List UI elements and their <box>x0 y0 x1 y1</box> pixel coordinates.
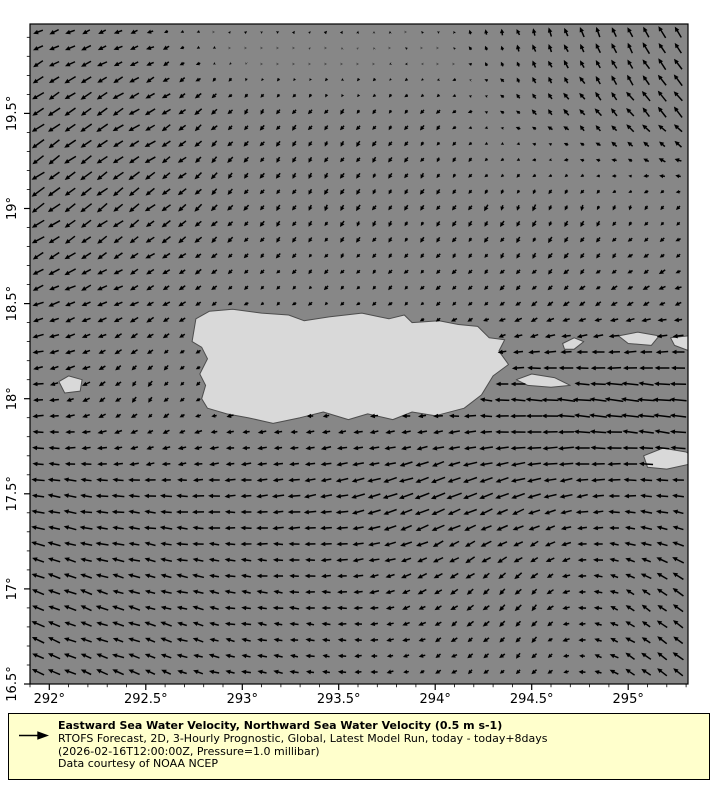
land-puerto-rico <box>192 309 508 423</box>
y-tick-label: 16.5° <box>5 666 20 701</box>
legend-subtitle: RTOFS Forecast, 2D, 3-Hourly Prognostic,… <box>58 733 548 746</box>
y-tick-label: 18.5° <box>5 286 20 321</box>
legend-title: Eastward Sea Water Velocity, Northward S… <box>58 720 548 733</box>
y-tick-label: 19° <box>5 197 20 220</box>
velocity-forecast-map-page: 292°292.5°293°293.5°294°294.5°295°16.5°1… <box>0 0 720 800</box>
reference-arrow-icon <box>18 729 50 741</box>
reference-arrow-wrap <box>9 714 58 745</box>
y-tick-label: 17° <box>5 577 20 600</box>
y-tick-label: 18° <box>5 387 20 410</box>
x-tick-label: 295° <box>613 692 644 707</box>
x-tick-label: 292.5° <box>124 692 168 707</box>
legend-box: Eastward Sea Water Velocity, Northward S… <box>8 713 710 780</box>
x-tick-label: 292° <box>34 692 65 707</box>
x-tick-label: 293.5° <box>317 692 361 707</box>
legend-credit: Data courtesy of NOAA NCEP <box>58 758 548 771</box>
x-tick-label: 293° <box>227 692 258 707</box>
y-tick-label: 19.5° <box>5 96 20 131</box>
x-tick-label: 294° <box>420 692 451 707</box>
velocity-quiver-plot: 292°292.5°293°293.5°294°294.5°295°16.5°1… <box>0 0 720 712</box>
legend-text-block: Eastward Sea Water Velocity, Northward S… <box>58 714 548 771</box>
y-tick-label: 17.5° <box>5 476 20 511</box>
x-tick-label: 294.5° <box>510 692 554 707</box>
